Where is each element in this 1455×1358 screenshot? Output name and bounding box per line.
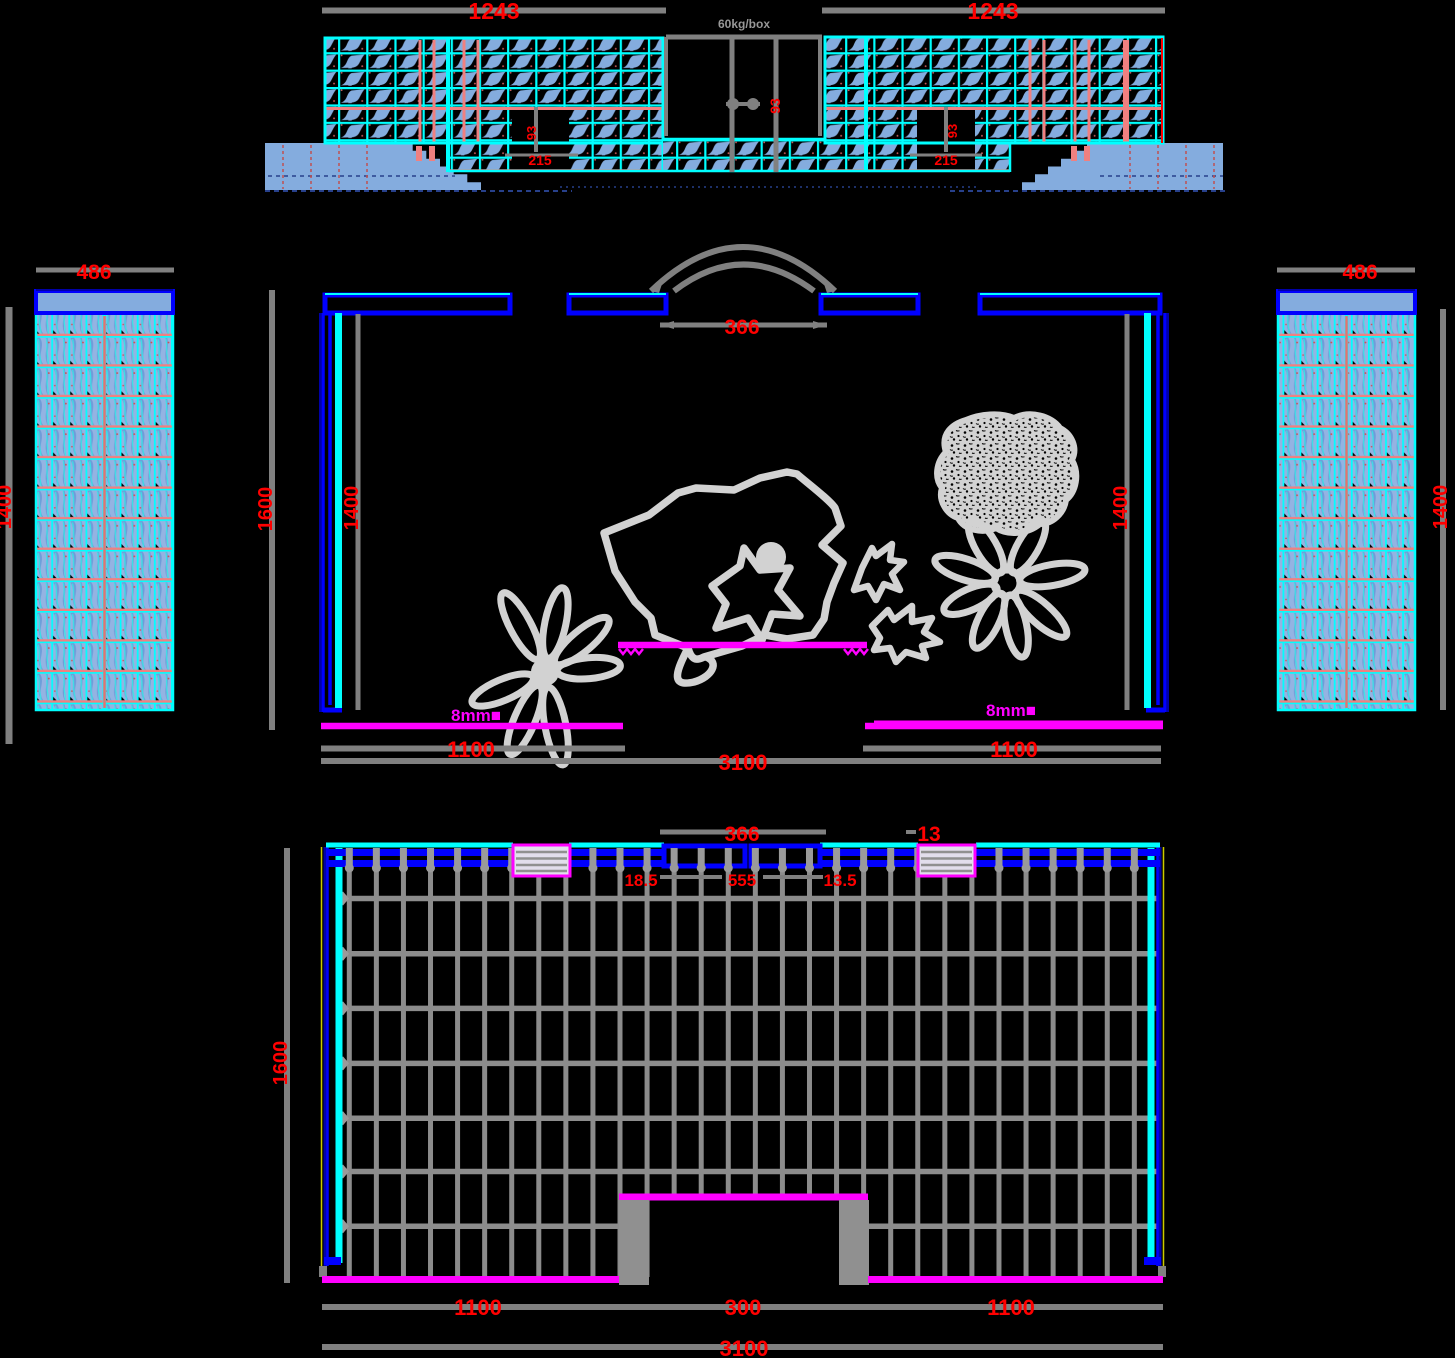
svg-text:60kg/box: 60kg/box <box>718 17 770 31</box>
svg-text:13: 13 <box>917 823 940 846</box>
svg-text:366: 366 <box>724 823 759 846</box>
svg-text:1600: 1600 <box>255 487 277 532</box>
svg-text:93: 93 <box>524 126 539 140</box>
svg-text:1400: 1400 <box>341 486 363 531</box>
svg-text:8mm■: 8mm■ <box>451 706 501 725</box>
svg-text:1400: 1400 <box>0 485 16 530</box>
svg-text:555: 555 <box>728 871 756 890</box>
svg-text:93: 93 <box>767 98 783 114</box>
svg-text:1400: 1400 <box>1110 486 1132 531</box>
svg-text:215: 215 <box>934 152 958 168</box>
svg-text:486: 486 <box>1342 261 1377 284</box>
svg-text:93: 93 <box>945 124 960 138</box>
svg-text:3100: 3100 <box>720 1336 769 1358</box>
svg-text:1100: 1100 <box>454 1295 502 1320</box>
svg-text:1100: 1100 <box>987 1295 1035 1320</box>
svg-text:1400: 1400 <box>1430 485 1452 530</box>
svg-text:366: 366 <box>724 316 759 339</box>
svg-text:215: 215 <box>528 152 552 168</box>
svg-text:1243: 1243 <box>967 0 1018 24</box>
svg-text:1243: 1243 <box>468 0 519 24</box>
svg-text:486: 486 <box>76 261 111 284</box>
svg-text:18.5: 18.5 <box>624 871 657 890</box>
svg-text:1600: 1600 <box>270 1041 292 1086</box>
svg-text:300: 300 <box>725 1295 762 1320</box>
svg-text:3100: 3100 <box>719 750 768 775</box>
svg-text:13.5: 13.5 <box>823 871 856 890</box>
svg-text:8mm■: 8mm■ <box>986 701 1036 720</box>
